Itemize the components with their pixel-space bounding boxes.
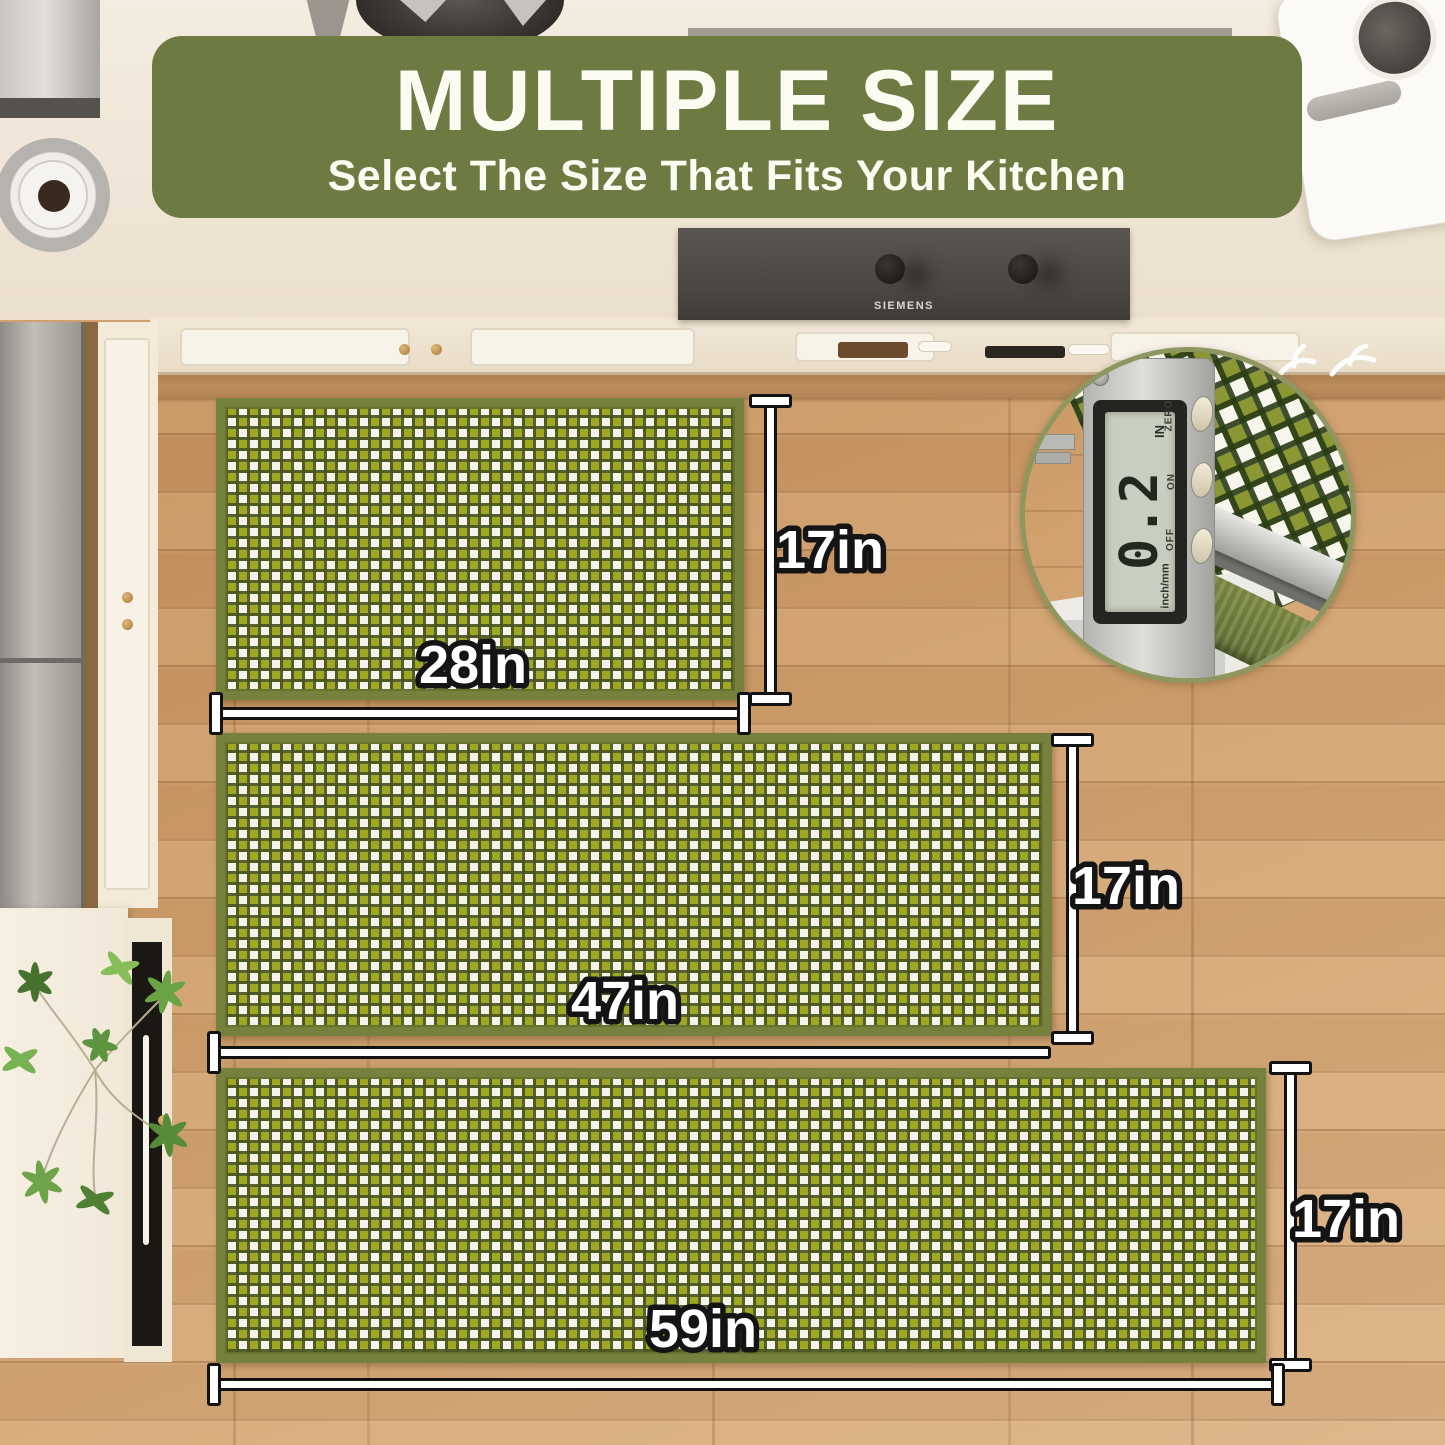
caliper-on-label: ON xyxy=(1166,473,1177,490)
cabinet-door-panel xyxy=(104,338,150,890)
dimension-line-47in xyxy=(211,1046,1051,1059)
width-label-small: 28in xyxy=(368,621,578,707)
iron-detail xyxy=(400,0,446,22)
thickness-detail-inset: 0.2 IN ZERO ON OFF inch/mm xyxy=(1020,347,1356,683)
stainless-oven xyxy=(0,322,84,1010)
cabinet-knob xyxy=(122,592,133,603)
svg-text:28in: 28in xyxy=(419,635,527,695)
air-fryer-knob xyxy=(1347,0,1443,86)
kitchen-size-infographic: SIEMENS xyxy=(0,0,1445,1445)
iron-detail xyxy=(504,0,546,26)
dimension-cap xyxy=(207,1363,221,1406)
height-label-medium: 17in xyxy=(1041,842,1211,928)
caliper-thumb-roller xyxy=(1035,452,1071,464)
height-label-small: 17in xyxy=(745,506,915,592)
cabinet-door-panel xyxy=(470,328,695,366)
svg-text:17in: 17in xyxy=(776,520,884,580)
cabinet-knob xyxy=(122,619,133,630)
width-label-large: 59in xyxy=(598,1285,808,1371)
dimension-cap xyxy=(209,692,223,735)
caliper-thumb-roller xyxy=(1031,434,1075,450)
title-banner: MULTIPLE SIZE Select The Size That Fits … xyxy=(152,36,1302,218)
hood-brand-label: SIEMENS xyxy=(678,300,1130,312)
air-fryer-handle xyxy=(1305,78,1404,123)
dimension-cap xyxy=(737,692,751,735)
caliper-screw xyxy=(1091,368,1109,386)
svg-text:17in: 17in xyxy=(1072,856,1180,916)
cabinet-frame xyxy=(84,322,98,1010)
svg-text:47in: 47in xyxy=(571,971,679,1031)
caliper-off-label: OFF xyxy=(1165,528,1176,551)
coffee-surface xyxy=(38,180,70,212)
dimension-line-59in xyxy=(211,1378,1279,1391)
width-label-medium: 47in xyxy=(520,957,730,1043)
oven-divider xyxy=(0,658,84,663)
cabinet-door-panel xyxy=(180,328,410,366)
dimension-cap xyxy=(1051,733,1094,747)
plant-leaves xyxy=(0,950,189,1218)
banner-title: MULTIPLE SIZE xyxy=(152,58,1302,144)
dimension-cap xyxy=(1269,1061,1312,1075)
dimension-line-28in xyxy=(213,707,747,720)
range-hood: SIEMENS xyxy=(678,228,1130,320)
banner-subtitle: Select The Size That Fits Your Kitchen xyxy=(152,152,1302,201)
tall-cabinet xyxy=(98,322,158,908)
svg-text:17in: 17in xyxy=(1292,1189,1400,1249)
dimension-cap xyxy=(207,1031,221,1074)
caliper-mode-label: inch/mm xyxy=(1160,563,1172,608)
hood-knob xyxy=(1008,254,1038,284)
counter-vent-slot xyxy=(838,342,908,358)
drawer-handle xyxy=(918,341,952,352)
hood-knob xyxy=(875,254,905,284)
cabinet-knob xyxy=(431,344,442,355)
dimension-cap xyxy=(749,692,792,706)
svg-text:59in: 59in xyxy=(649,1299,757,1359)
dimension-cap xyxy=(749,394,792,408)
cabinet-knob xyxy=(399,344,410,355)
coffee-machine xyxy=(0,0,100,118)
dimension-cap xyxy=(1051,1031,1094,1045)
caliper-zero-label: ZERO xyxy=(1163,400,1174,432)
height-label-large: 17in xyxy=(1261,1175,1431,1261)
dimension-cap xyxy=(1271,1363,1285,1406)
potted-plant xyxy=(0,950,215,1230)
